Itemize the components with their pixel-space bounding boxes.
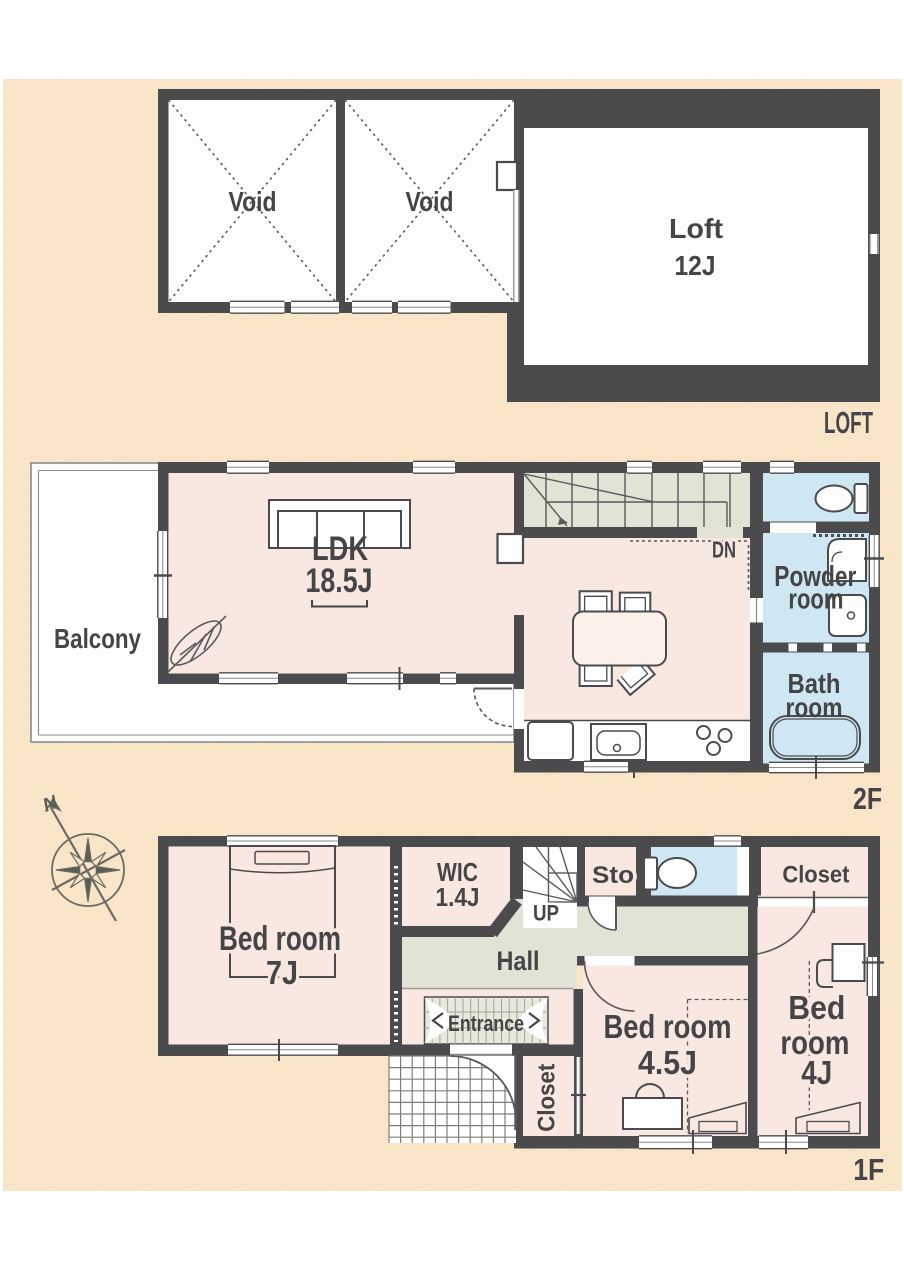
svg-text:Hall: Hall	[497, 946, 540, 976]
svg-text:Loft: Loft	[669, 213, 723, 244]
svg-text:UP: UP	[533, 901, 559, 926]
svg-text:Void: Void	[406, 186, 454, 217]
svg-text:Balcony: Balcony	[54, 623, 141, 654]
svg-text:4J: 4J	[801, 1054, 832, 1091]
svg-text:Bed room: Bed room	[604, 1008, 732, 1045]
svg-text:12J: 12J	[675, 250, 716, 281]
svg-text:room: room	[786, 692, 843, 723]
svg-text:LOFT: LOFT	[824, 405, 873, 440]
svg-text:Closet: Closet	[534, 1064, 561, 1132]
svg-text:18.5J: 18.5J	[306, 562, 373, 600]
svg-text:Sto: Sto	[592, 862, 634, 889]
svg-text:room: room	[788, 584, 843, 616]
svg-text:Bed room: Bed room	[219, 920, 341, 958]
svg-text:1.4J: 1.4J	[436, 882, 480, 912]
svg-text:4.5J: 4.5J	[638, 1044, 697, 1081]
svg-text:1F: 1F	[853, 1152, 884, 1187]
svg-text:Closet: Closet	[782, 862, 849, 889]
svg-text:7J: 7J	[266, 954, 298, 991]
svg-text:Entrance: Entrance	[448, 1011, 524, 1036]
svg-text:Void: Void	[229, 186, 277, 217]
svg-text:2F: 2F	[853, 781, 882, 816]
svg-text:DN: DN	[712, 537, 736, 563]
svg-text:Bed: Bed	[788, 989, 845, 1026]
